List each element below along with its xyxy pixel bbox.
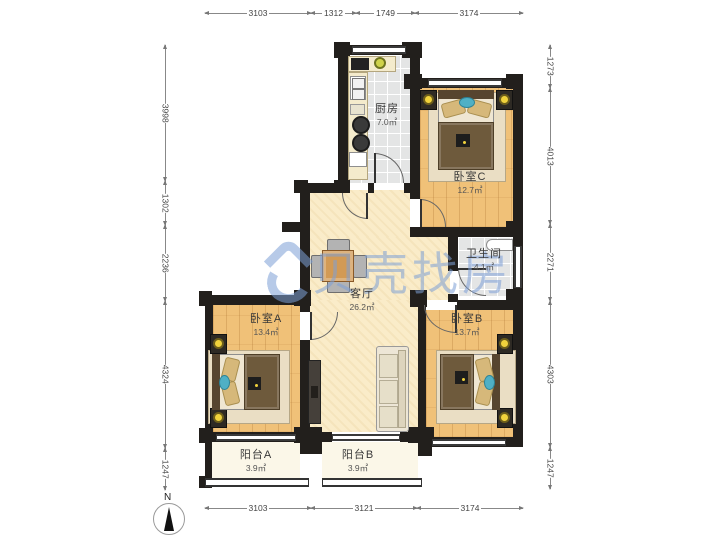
entry-door-leaf <box>366 193 368 219</box>
wall-column <box>294 180 308 193</box>
balcony-b-rail <box>322 478 422 487</box>
dim-value: 4324 <box>159 365 172 384</box>
dim-bottom-1: 3103 <box>205 501 311 515</box>
dim-top-3: 1749 <box>356 6 415 20</box>
wall-column <box>506 289 523 302</box>
sink-basin-2 <box>352 89 365 100</box>
bedroom-c-door-leaf <box>420 199 422 227</box>
bedroom-b-door-leaf <box>455 305 457 333</box>
dim-value: 3174 <box>459 504 482 513</box>
dim-right-1: 1273 <box>543 45 557 88</box>
wall-column <box>506 437 523 447</box>
round-pillow <box>219 375 230 390</box>
dim-value: 3103 <box>247 9 270 18</box>
tv-light <box>463 141 466 144</box>
tv-cabinet-screen <box>311 386 318 398</box>
wall <box>448 237 458 271</box>
bedroom-a-balcony-door <box>216 434 296 441</box>
kitchen-appliance <box>350 104 365 115</box>
north-arrow-icon <box>164 507 174 531</box>
dim-right-4: 4303 <box>543 301 557 447</box>
bedroom-a-door-leaf <box>310 312 312 340</box>
pot-icon <box>352 134 370 152</box>
lamp-icon <box>423 94 434 105</box>
dim-right-5: 1247 <box>543 447 557 489</box>
kitchen-window <box>352 46 406 54</box>
kitchen-basin-icon <box>374 57 386 69</box>
sink-basin-1 <box>352 78 365 89</box>
dim-left-3: 2236 <box>158 225 172 301</box>
lamp-icon <box>499 94 510 105</box>
dim-right-2: 4013 <box>543 88 557 224</box>
bedroom-c-window <box>428 79 502 87</box>
dim-right-3: 2271 <box>543 224 557 301</box>
dim-value: 1749 <box>374 9 397 18</box>
tv-light <box>255 384 258 387</box>
dim-bottom-2: 3121 <box>311 501 417 515</box>
dim-left-1: 3998 <box>158 45 172 181</box>
dim-left-4: 4324 <box>158 301 172 448</box>
lamp-icon <box>213 412 224 423</box>
dining-table <box>322 250 354 282</box>
dim-value: 4303 <box>544 365 557 384</box>
bathtub <box>486 239 513 251</box>
wall-column <box>506 221 523 234</box>
dim-value: 1247 <box>544 459 557 478</box>
dim-top-1: 3103 <box>205 6 311 20</box>
balcony-a-rail <box>205 478 309 487</box>
dim-bottom-3: 3174 <box>417 501 523 515</box>
bathroom-door-leaf <box>458 268 486 270</box>
dim-top-2: 1312 <box>311 6 356 20</box>
bathroom-window <box>514 246 522 288</box>
pot-icon <box>352 116 370 134</box>
wall <box>338 45 348 193</box>
round-pillow <box>459 97 475 108</box>
dim-value: 1273 <box>544 57 557 76</box>
wall <box>418 300 426 442</box>
wall-column <box>199 291 212 306</box>
kitchen-door-leaf <box>374 153 376 183</box>
wall <box>282 222 308 232</box>
lamp-icon <box>499 338 510 349</box>
dim-value: 1302 <box>159 194 172 213</box>
wall-column <box>334 180 350 193</box>
dim-value: 2271 <box>544 253 557 272</box>
dim-value: 3174 <box>458 9 481 18</box>
dim-value: 3103 <box>247 504 270 513</box>
dim-value: 3121 <box>353 504 376 513</box>
dim-value: 3998 <box>159 104 172 123</box>
sofa-back <box>398 350 406 428</box>
wall-column <box>506 74 523 89</box>
wall-column <box>408 427 434 443</box>
cooktop-icon <box>351 58 369 70</box>
dim-left-5: 1247 <box>158 448 172 490</box>
dim-left-2: 1302 <box>158 181 172 225</box>
wall-column <box>404 74 422 89</box>
sofa-cushion <box>379 354 398 378</box>
tv-light <box>462 378 465 381</box>
lamp-icon <box>213 338 224 349</box>
dim-value: 2236 <box>159 254 172 273</box>
wall <box>368 183 374 193</box>
compass-n-label: N <box>164 492 171 503</box>
dim-value: 1247 <box>159 460 172 479</box>
bedroom-b-window <box>432 439 506 446</box>
floorplan-canvas: 贝壳找房 厨房 7.0㎡ 卧室C 12.7㎡ 卫生间 4.1㎡ 客厅 26.2㎡… <box>0 0 720 540</box>
washing-machine <box>349 152 367 167</box>
sofa-cushion <box>379 380 398 404</box>
balcony-b-floor <box>322 442 418 478</box>
wall-column <box>294 427 322 443</box>
dim-value: 4013 <box>544 147 557 166</box>
dim-value: 1312 <box>322 9 345 18</box>
dim-top-4: 3174 <box>415 6 523 20</box>
balcony-a-floor <box>212 442 300 478</box>
round-pillow <box>484 375 495 390</box>
lamp-icon <box>499 412 510 423</box>
wall-column <box>199 428 212 443</box>
wall-column <box>294 290 311 306</box>
wall <box>410 45 420 199</box>
sofa-cushion <box>379 406 398 428</box>
dining-chair <box>353 255 367 278</box>
living-balcony-door <box>332 434 400 441</box>
